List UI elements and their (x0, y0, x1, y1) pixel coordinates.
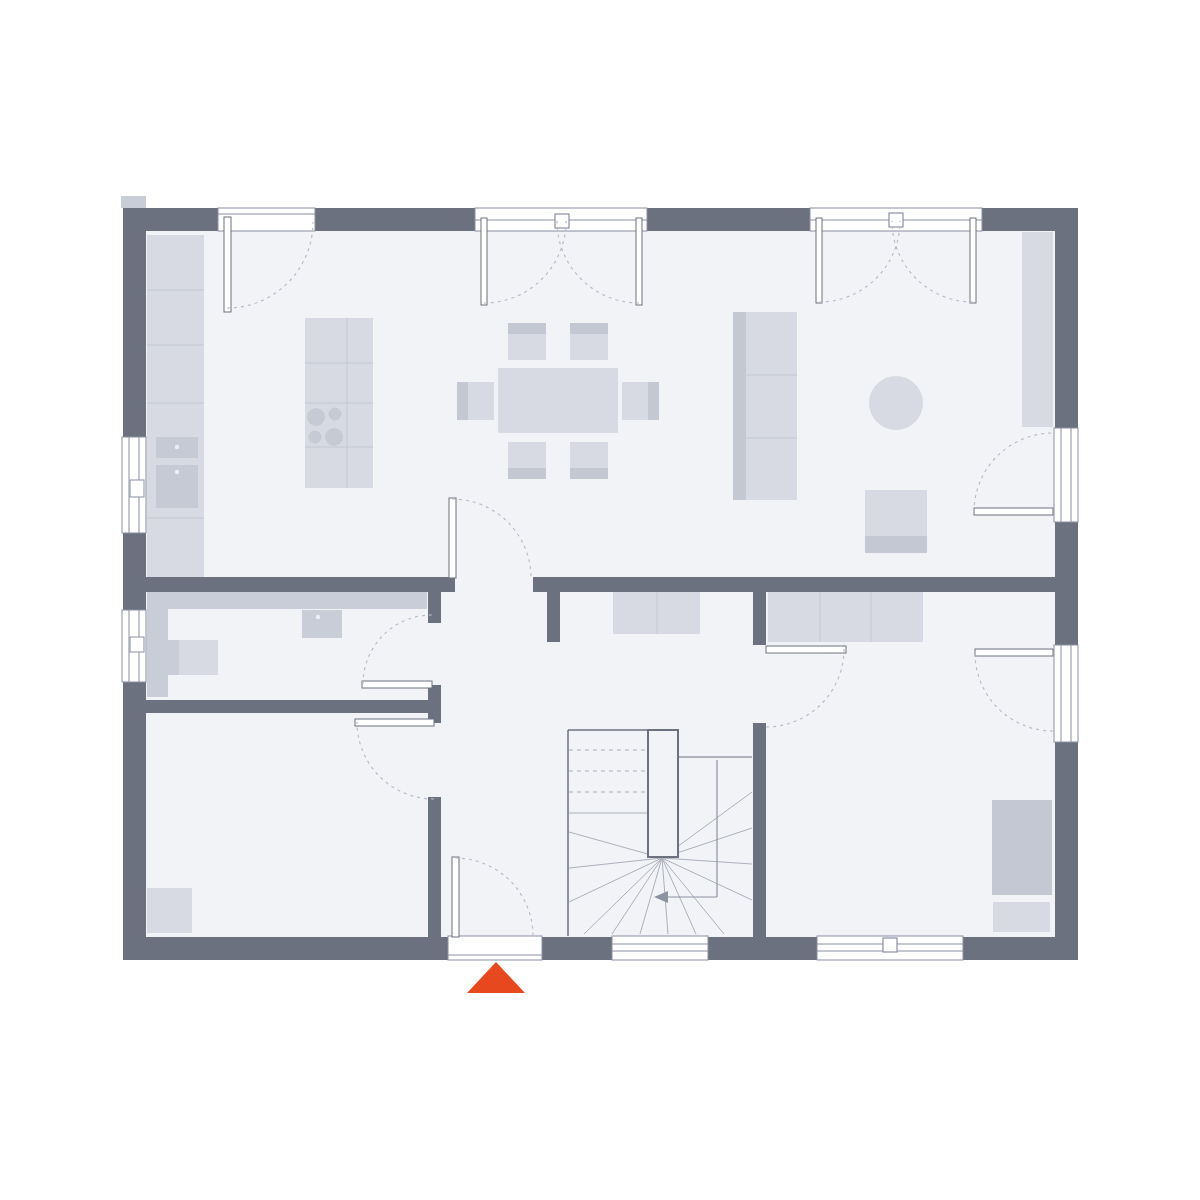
wall-segment (145, 577, 455, 592)
cooktop-burner (309, 431, 322, 444)
sideboard (1022, 232, 1053, 427)
wall-segment (428, 592, 441, 623)
utility-sink-drain (316, 615, 320, 619)
door-leaf-bedroom (766, 646, 846, 653)
door-leaf-french-dining-right (636, 218, 642, 305)
door-leaf-window-bedroom (975, 649, 1053, 656)
french-window-bedroom-handle (883, 938, 897, 952)
french-window-living-side (1054, 428, 1078, 522)
washing-machine-edge (168, 640, 179, 675)
wall-segment (963, 937, 1078, 960)
door-opening-kitchen (218, 208, 315, 231)
window-utility-handle (130, 637, 144, 652)
wall-segment (1055, 522, 1078, 645)
dining-chair-back (508, 468, 546, 479)
dining-chair-back (570, 323, 608, 334)
door-leaf-kitchen (224, 217, 231, 312)
door-leaf-storage-room (355, 719, 434, 726)
dining-table (498, 368, 618, 433)
door-leaf-french-dining-left (481, 218, 487, 305)
markers (467, 962, 525, 993)
tall-oven-knob (175, 470, 179, 474)
kitchen-counter (147, 235, 204, 577)
wall-segment (753, 723, 766, 937)
wall-segment (123, 208, 146, 437)
wall-segment (123, 682, 146, 960)
door-leaf-entrance (452, 857, 459, 937)
window-kitchen-handle (130, 480, 144, 497)
dining-chair-back (508, 323, 546, 334)
wall-segment (533, 577, 1055, 592)
dining-chair-back (648, 382, 659, 420)
armchair-back (865, 536, 927, 553)
wall-segment (547, 592, 560, 642)
door-leaf-hall-dining (449, 498, 456, 578)
dining-chair-back (570, 468, 608, 479)
window-hall-bottom (612, 936, 708, 960)
window-bedroom-side (1054, 645, 1078, 742)
wall-segment (753, 592, 766, 645)
door-leaf-french-living-left (816, 218, 822, 303)
sofa-backrest (733, 312, 746, 500)
dining-chair-back (457, 382, 468, 420)
storage-box (147, 888, 192, 933)
entrance-arrow (467, 962, 525, 993)
wall-segment (1055, 208, 1078, 428)
utility-counter-side (147, 592, 168, 697)
door-leaf-french-living-right (970, 218, 976, 303)
coffee-table-round (869, 376, 923, 430)
wall-segment (315, 208, 475, 231)
french-door-living-handle (889, 213, 903, 227)
floor-plan-page (0, 0, 1200, 1200)
oven-knob (175, 445, 179, 449)
wall-segment (123, 533, 146, 610)
chimney-block (121, 196, 146, 208)
bed-body (992, 800, 1052, 895)
utility-sink (302, 610, 342, 638)
door-leaf-utility (362, 681, 432, 688)
entrance-opening (448, 936, 542, 960)
wall-segment (145, 700, 441, 713)
wall-segment (708, 937, 817, 960)
floor-plan-canvas (0, 0, 1200, 1200)
cooktop-burner (307, 408, 325, 426)
wall-segment (1055, 742, 1078, 960)
wall-segment (542, 937, 612, 960)
cooktop-burner (329, 408, 342, 421)
utility-counter (147, 592, 427, 609)
wardrobe (768, 592, 923, 642)
wall-segment (123, 937, 448, 960)
wall-segment (428, 797, 441, 937)
bed-pillow (993, 902, 1050, 932)
stair-void (648, 730, 678, 857)
door-leaf-french-window-living (974, 508, 1053, 515)
wall-segment (647, 208, 810, 231)
cooktop-burner (325, 428, 343, 446)
